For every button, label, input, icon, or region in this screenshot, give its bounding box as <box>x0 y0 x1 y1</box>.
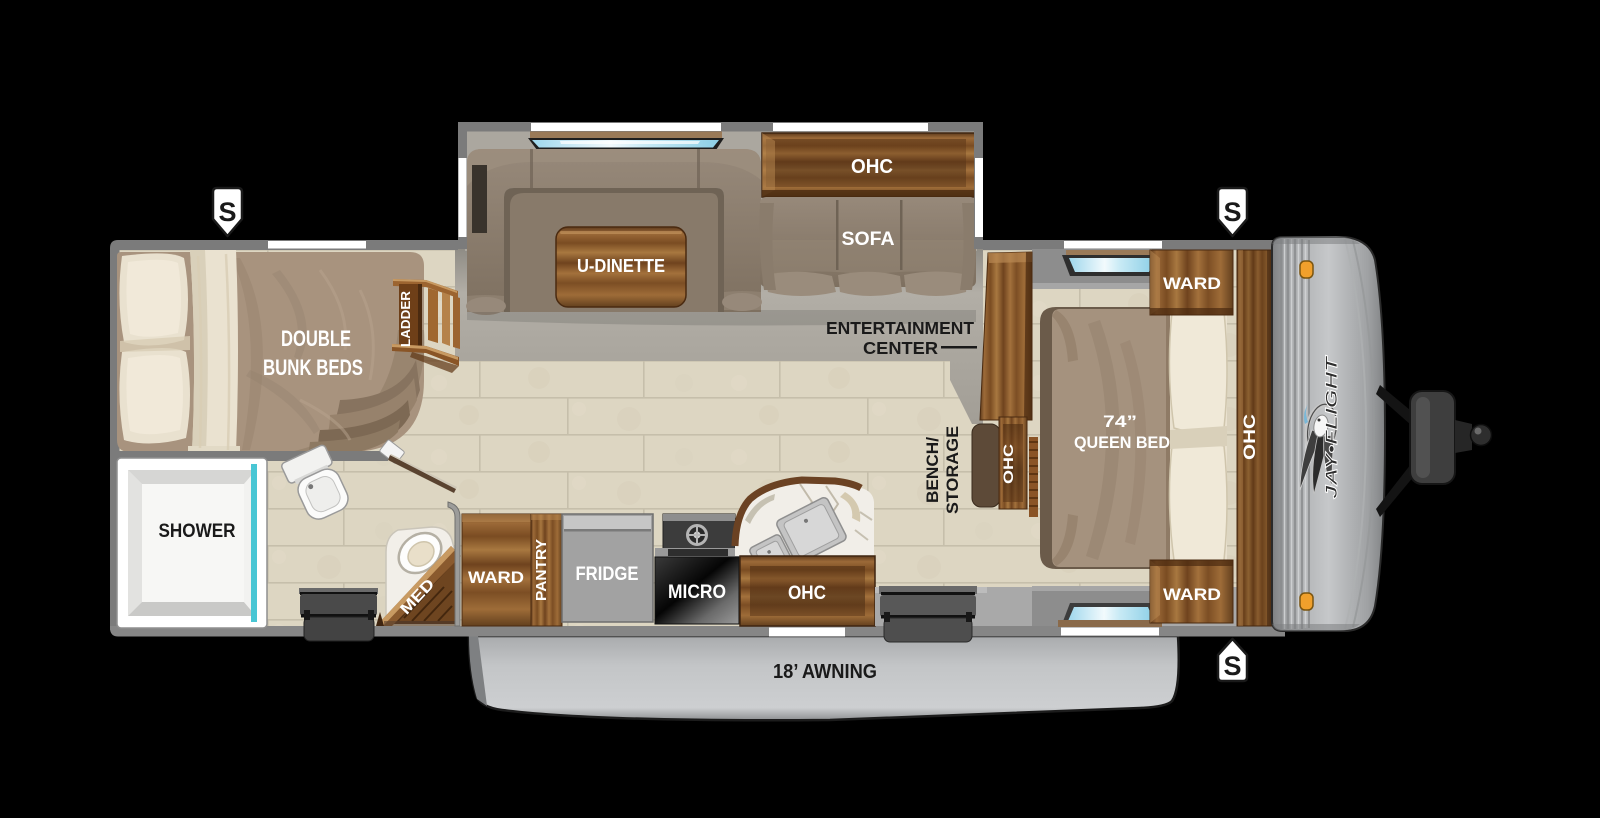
svg-text:BUNK BEDS: BUNK BEDS <box>263 355 363 380</box>
svg-text:BENCH/: BENCH/ <box>924 437 942 503</box>
svg-text:18’ AWNING: 18’ AWNING <box>773 661 877 683</box>
svg-text:STORAGE: STORAGE <box>944 426 962 514</box>
svg-text:WARD: WARD <box>1163 274 1221 293</box>
svg-text:S: S <box>1223 197 1241 227</box>
svg-text:WARD: WARD <box>468 568 524 587</box>
svg-text:S: S <box>218 197 236 227</box>
svg-text:S: S <box>1223 651 1241 681</box>
svg-text:JAY•FLIGHT: JAY•FLIGHT <box>1322 355 1341 499</box>
svg-text:OHC: OHC <box>851 156 893 178</box>
svg-text:CENTER: CENTER <box>863 338 938 358</box>
svg-text:OHC: OHC <box>1000 444 1016 484</box>
svg-text:WARD: WARD <box>1163 585 1221 604</box>
svg-text:QUEEN BED: QUEEN BED <box>1074 434 1170 452</box>
svg-text:U-DINETTE: U-DINETTE <box>577 256 665 276</box>
svg-text:SOFA: SOFA <box>842 229 895 250</box>
svg-text:ENTERTAINMENT: ENTERTAINMENT <box>826 318 974 338</box>
svg-text:LADDER: LADDER <box>399 291 413 347</box>
svg-text:SHOWER: SHOWER <box>159 521 236 542</box>
svg-text:OHC: OHC <box>788 583 826 604</box>
svg-text:PANTRY: PANTRY <box>533 539 550 601</box>
svg-text:74”: 74” <box>1103 413 1137 431</box>
svg-text:OHC: OHC <box>1240 414 1259 460</box>
svg-text:FRIDGE: FRIDGE <box>576 564 639 585</box>
svg-text:DOUBLE: DOUBLE <box>281 326 351 351</box>
svg-text:MICRO: MICRO <box>668 582 726 603</box>
